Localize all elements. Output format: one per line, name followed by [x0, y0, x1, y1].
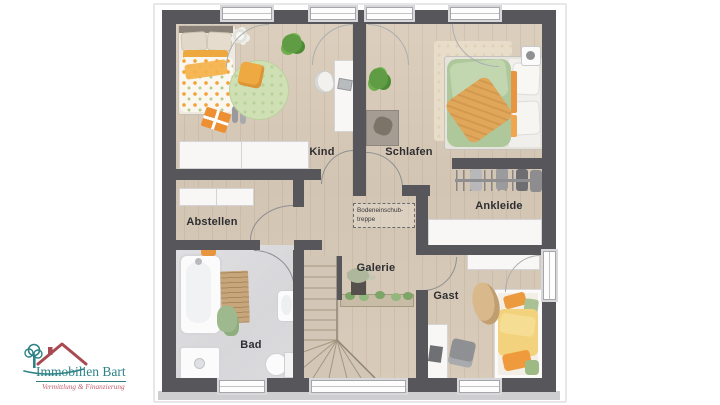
attic-hatch-note-line2: treppe — [357, 215, 411, 224]
kind-wardrobe — [179, 141, 309, 169]
shower-tray — [179, 346, 221, 381]
gast-bed — [494, 289, 543, 380]
room-label-schlafen: Schlafen — [385, 146, 432, 158]
company-logo: Immobilien Bart Vermittlung & Finanzieru… — [20, 340, 160, 398]
wall-bad-top-right — [294, 240, 322, 250]
bathtub-basin — [186, 262, 211, 323]
wall-gast-left — [416, 290, 428, 378]
window — [311, 380, 406, 393]
abstellen-cabinet — [179, 188, 254, 206]
window — [219, 380, 265, 393]
kind-desk — [334, 60, 355, 132]
window — [459, 380, 500, 393]
speaker-cone — [526, 51, 535, 60]
sink-basin — [281, 295, 292, 315]
window — [310, 7, 356, 20]
wall-right — [542, 10, 556, 392]
schlafen-bed — [444, 56, 543, 150]
attic-hatch-note-line1: Bodeneinschub- — [357, 206, 411, 215]
kind-bed-pillow — [180, 31, 207, 52]
window — [222, 7, 272, 20]
wall-ankleide-bottom — [416, 245, 542, 255]
wardrobe-divider — [241, 142, 242, 168]
wall-bad-top-left — [176, 240, 260, 250]
ankleide-sideboard — [428, 219, 542, 246]
wall-ankleide-top — [452, 158, 542, 169]
wall-bad-right — [293, 250, 304, 378]
room-label-abstellen: Abstellen — [186, 216, 237, 228]
green-towels — [217, 306, 237, 332]
wall-hall-stub — [353, 170, 366, 196]
room-label-ankleide: Ankleide — [475, 200, 522, 212]
gast-monitor — [428, 345, 443, 363]
window — [450, 7, 500, 20]
kind-bed-pillow — [207, 31, 233, 51]
stair-railing — [337, 256, 342, 300]
kind-plant — [282, 34, 302, 53]
wall-kind-bottom — [176, 169, 321, 180]
wall-ankleide-left — [416, 196, 428, 248]
schlafen-chair — [371, 114, 394, 137]
brand-tagline: Vermittlung & Finanzierung — [42, 382, 125, 391]
schlafen-desk — [366, 110, 399, 146]
brand-name: Immobilien Bart — [36, 364, 126, 382]
room-label-kind: Kind — [309, 146, 334, 158]
cabinet-divider — [216, 189, 217, 205]
room-label-gast: Gast — [433, 290, 458, 302]
room-label-bad: Bad — [240, 339, 261, 351]
room-label-galerie: Galerie — [357, 262, 396, 274]
shower-drain — [194, 358, 205, 369]
closet-rail — [455, 179, 539, 182]
wall-abstellen-right — [293, 180, 304, 207]
window — [543, 251, 556, 300]
wall-left — [162, 10, 176, 392]
galerie-ledge — [340, 294, 414, 307]
gast-green-corner — [525, 360, 539, 375]
bathtub-faucet — [195, 258, 202, 265]
attic-hatch-note: Bodeneinschub- treppe — [353, 203, 415, 228]
schlafen-plant — [369, 68, 388, 89]
wall-schlafen-bottom — [402, 185, 430, 196]
floorplan-page: Kind Schlafen Abstellen Ankleide Bad Gal… — [0, 0, 720, 405]
window — [366, 7, 413, 20]
kind-laptop — [337, 78, 353, 91]
wall-kind-schlafen — [353, 24, 366, 170]
wall-speaker — [521, 46, 541, 66]
kind-bed — [178, 25, 236, 115]
bathtub — [179, 254, 222, 335]
